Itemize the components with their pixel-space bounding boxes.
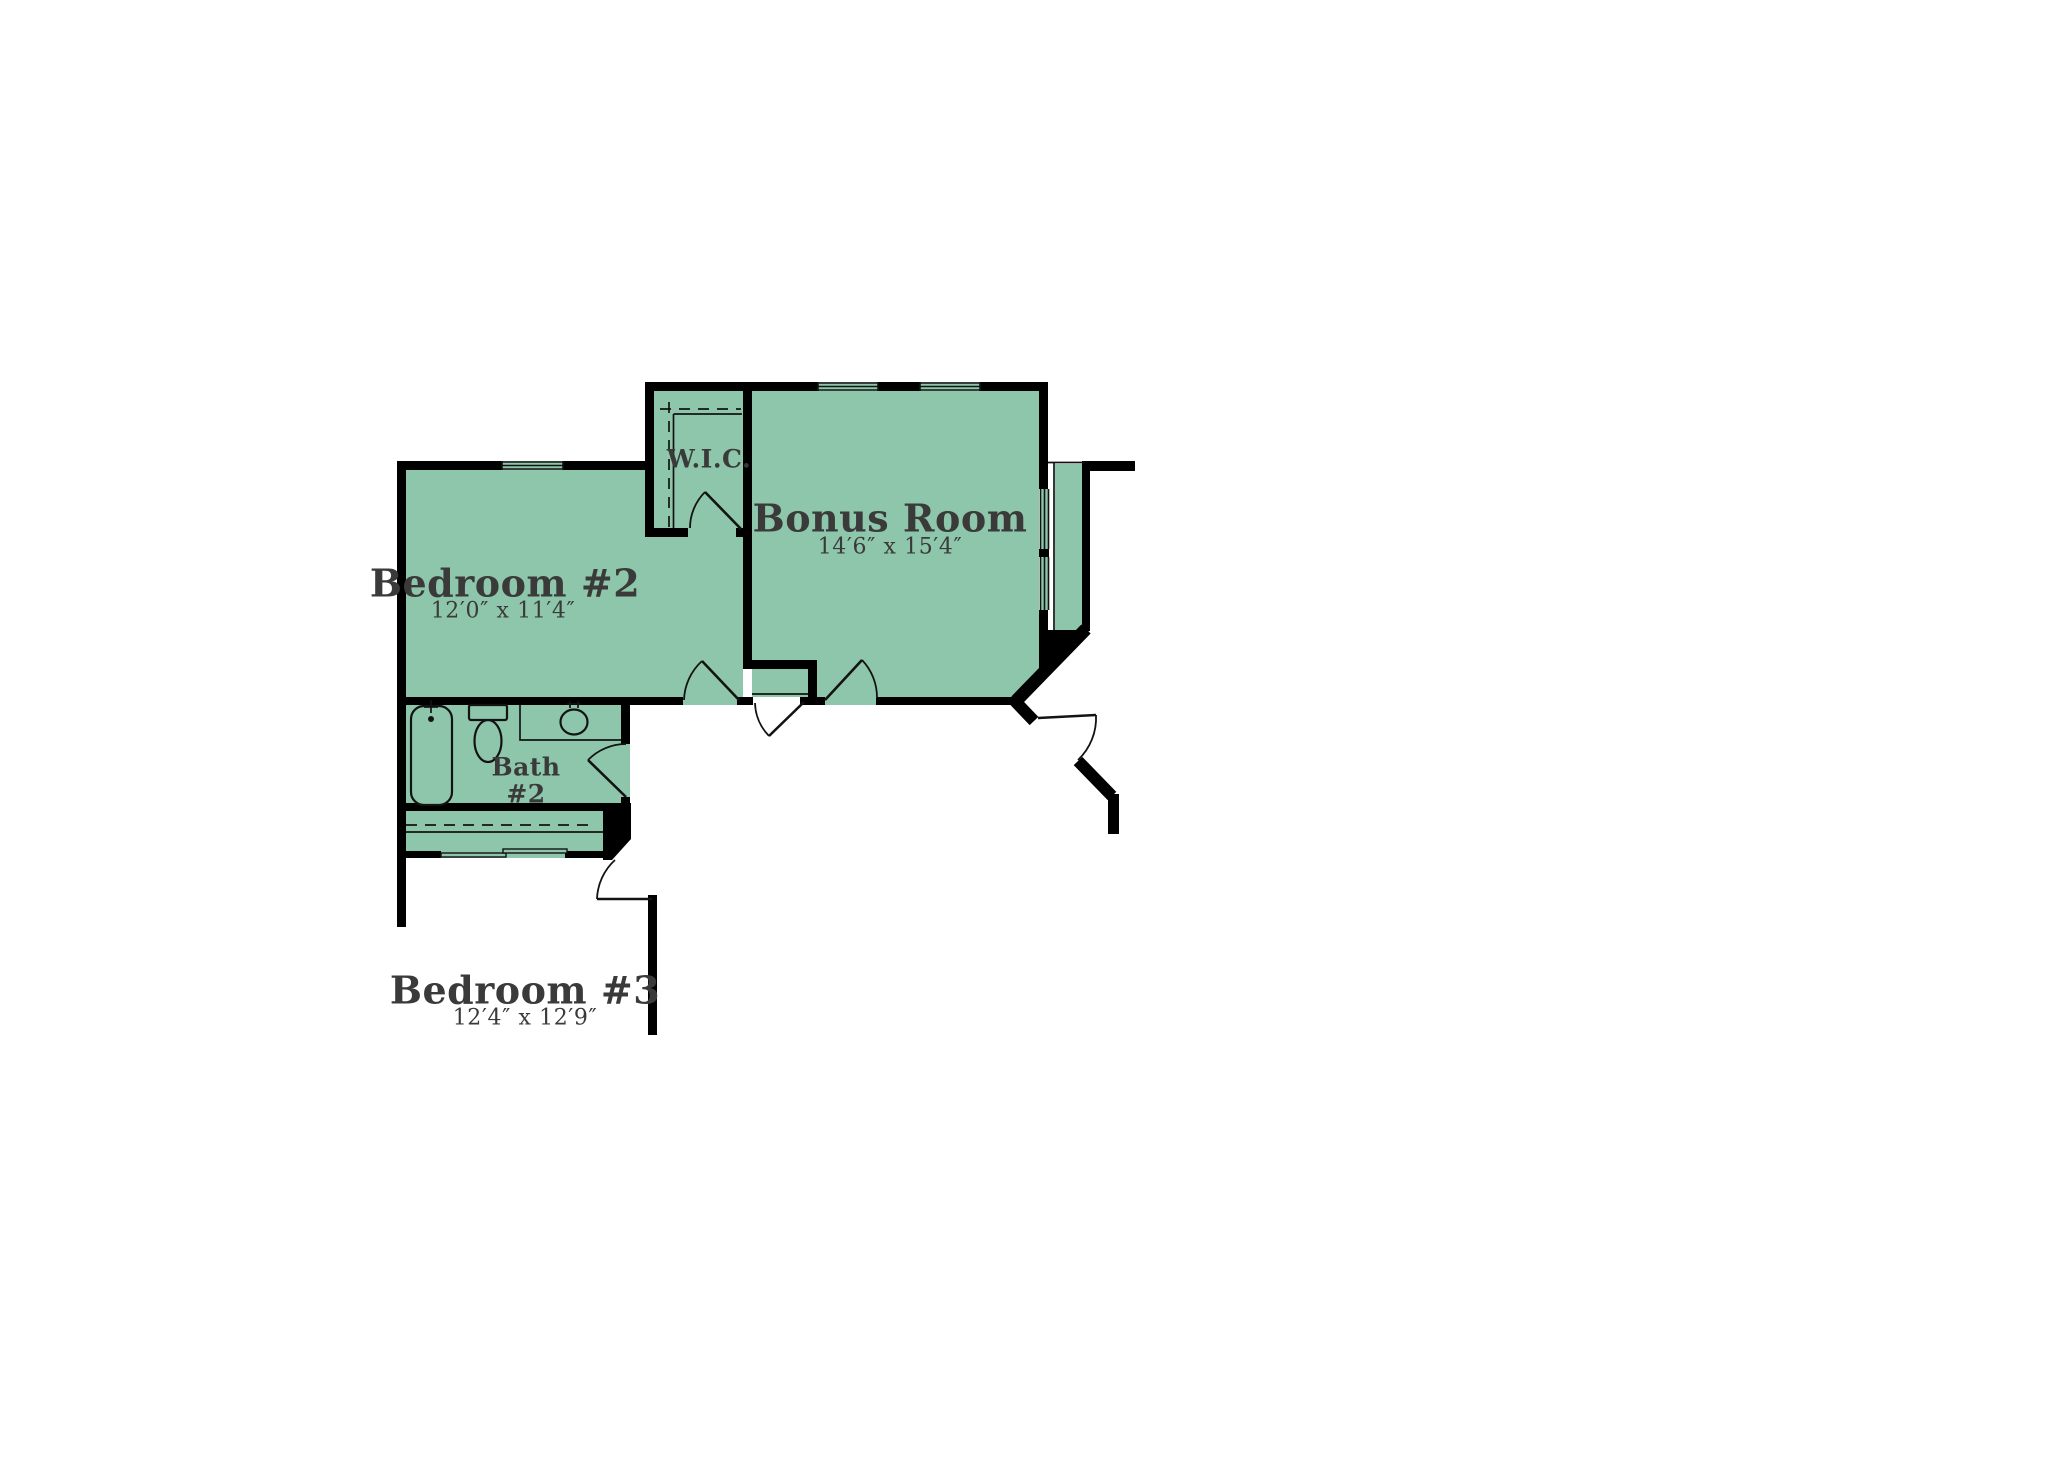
window-lines	[818, 382, 878, 391]
window-lines	[920, 382, 980, 391]
bypass-door-panel	[503, 849, 567, 853]
bay-alcove-floor	[1055, 464, 1082, 630]
wall-wic-door-jamb	[736, 528, 743, 537]
door-leaf	[769, 702, 804, 736]
window	[1040, 489, 1049, 549]
wall-bonus-right-upper	[1039, 382, 1048, 489]
wall-wic-bottom	[645, 528, 688, 537]
bonus-room-dimensions: 14′6″ x 15′4″	[818, 535, 963, 560]
bathtub	[411, 700, 452, 805]
chase-closet-door-swing	[755, 702, 804, 736]
wall-door-jamb	[737, 697, 753, 705]
bedroom3-closet-floor	[406, 811, 603, 851]
door-arc	[755, 703, 769, 736]
wic-label: W.I.C.	[667, 445, 751, 474]
wall-top-right-horizontal	[1082, 461, 1135, 471]
wall-chase-top	[743, 660, 817, 669]
wall-closet-bottom-right	[565, 851, 603, 858]
wall-closet-bottom-left	[397, 851, 441, 858]
door-arc	[1078, 715, 1096, 760]
wall-closet-corner-block	[603, 803, 631, 860]
opening-fill	[825, 697, 876, 705]
door-leaf	[1038, 715, 1096, 718]
chase-closet-floor	[752, 669, 808, 694]
wall-bottom-right-vertical	[1108, 794, 1119, 834]
toilet-tank	[469, 705, 507, 720]
wall-center-vertical	[743, 382, 752, 669]
bathtub-drain	[428, 716, 434, 722]
bath2-label: Bath	[491, 753, 560, 782]
window	[818, 382, 878, 391]
wall-bonus-bottom	[876, 697, 1016, 705]
wall-window-mullion-stub	[1039, 549, 1049, 557]
opening-fill	[621, 744, 630, 797]
bath2-number-label: #2	[506, 780, 545, 809]
window	[502, 461, 563, 470]
window	[1040, 557, 1049, 610]
sink-basin	[561, 710, 588, 735]
bedroom3-door-swing	[597, 860, 652, 899]
opening-fill	[688, 528, 736, 537]
opening-fill	[683, 697, 737, 705]
wall-diagonal-lower	[1078, 761, 1112, 796]
bypass-door-panel	[441, 853, 506, 857]
wall-alcove-right	[1082, 461, 1090, 631]
wall-diagonal-stub	[1013, 699, 1034, 721]
wall-bedroom3-right	[648, 895, 657, 1035]
wall-bedroom2-bottom	[397, 697, 683, 705]
floor-plan: Bedroom #2 12′0″ x 11′4″ Bonus Room 14′6…	[0, 0, 2069, 1483]
door-arc	[597, 860, 615, 899]
wall-bath-right-upper	[621, 697, 630, 744]
bedroom2-dimensions: 12′0″ x 11′4″	[431, 599, 576, 624]
floor-plan-drawing	[0, 0, 2069, 1483]
wall-wic-left	[645, 382, 654, 537]
window-lines	[502, 461, 563, 470]
bedroom3-dimensions: 12′4″ x 12′9″	[453, 1006, 598, 1031]
window	[920, 382, 980, 391]
hall-door-swing	[1038, 715, 1096, 760]
